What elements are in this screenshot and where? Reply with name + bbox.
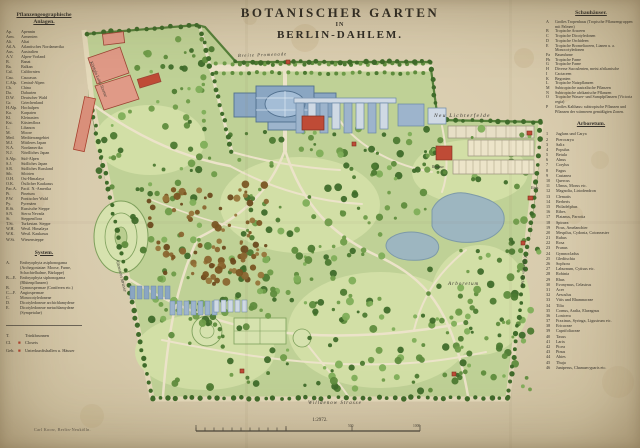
- label-lichterfelde: Neu Lichterfelde: [433, 112, 491, 119]
- system-abbr: A.: [6, 260, 20, 275]
- schauhaus-entry: P Großes Kalthaus: subtropische Pflanzen…: [546, 105, 636, 114]
- phytogeo-heading-1: Pflanzengeographische: [6, 12, 82, 19]
- printer-credit: Carl Koow, Berlin-Neukölln.: [34, 427, 91, 432]
- scale-mid-label: 500: [348, 424, 354, 428]
- title-line-2: IN: [180, 22, 500, 28]
- system-entry: A. Embryophyta asiphonogama (Archegoniat…: [6, 260, 82, 275]
- label-entrance: Eing.: [530, 186, 539, 190]
- system-heading: System.: [6, 250, 82, 257]
- map-title: BOTANISCHER GARTEN IN BERLIN-DAHLEM.: [180, 5, 500, 41]
- symbol-name: Trinkbrunnen: [25, 332, 82, 339]
- arboretum-heading: Arboretum.: [546, 121, 636, 128]
- symbol-abbr: Cl.: [6, 339, 18, 346]
- symbol-name: Unterkunftshallen u. Häuser: [25, 347, 82, 354]
- phytogeographic-legend: Pflanzengeographische Anlagen. Ap. Apenn…: [6, 12, 82, 354]
- title-line-3: BERLIN-DAHLEM.: [180, 29, 500, 41]
- arboretum-list: 1 Juglans und Carya 2 Pterocarya 3 Salix…: [546, 131, 636, 370]
- system-abbr: B—E.: [6, 275, 20, 285]
- scale-end-label: 1000: [413, 424, 420, 428]
- symbol-swatch: ■: [18, 347, 25, 354]
- title-line-1: BOTANISCHER GARTEN: [180, 5, 500, 21]
- system-entry: E. Dicotyledoneae metachlamydeae (Sympet…: [6, 305, 82, 315]
- symbol-swatch: ■: [18, 339, 25, 346]
- symbol-entry: T. Trinkbrunnen: [6, 332, 82, 339]
- symbol-entry: Geb. ■ Unterkunftshallen u. Häuser: [6, 347, 82, 354]
- label-arboretum-area: Arboretum: [447, 281, 479, 287]
- map-sheet: Breite Promenade Neu Lichterfelde Königi…: [0, 0, 640, 448]
- schauhaeuser-list: A Großes Tropenhaus (Tropische Pflanzeng…: [546, 20, 636, 114]
- symbol-swatch: [18, 332, 25, 339]
- label-restaurant: Restaur.: [431, 165, 444, 169]
- system-name: Dicotyledoneae metachlamydeae (Sympetala…: [20, 305, 82, 315]
- arboretum-entry: 46 Juniperus, Chamaecyparis etc.: [546, 365, 636, 370]
- schauhaus-name: Großes Kalthaus: subtropische Pflanzen u…: [555, 105, 636, 114]
- restaurant-building: [436, 146, 452, 160]
- legend-name: Wiesensteppe: [21, 237, 82, 242]
- system-list: A. Embryophyta asiphonogama (Archegoniat…: [6, 260, 82, 316]
- legend-entry: W.St. Wiesensteppe: [6, 237, 82, 242]
- schauhaeuser-legend: Schauhäuser. A Großes Tropenhaus (Tropis…: [546, 10, 636, 370]
- system-section: System. A. Embryophyta asiphonogama (Arc…: [6, 250, 82, 316]
- scale-ratio: 1:2972.: [280, 418, 360, 423]
- phytogeo-heading-2: Anlagen.: [6, 19, 82, 26]
- symbol-name: Closets: [25, 339, 82, 346]
- system-name: Embryophyta siphonogama (Blütenpflanzen): [20, 275, 82, 285]
- phytogeo-list: Ap. Apennin Arm. Armenien Alt. Altai Atl…: [6, 29, 82, 242]
- garden-map: Breite Promenade Neu Lichterfelde Königi…: [0, 0, 640, 448]
- schauhaeuser-heading: Schauhäuser.: [546, 10, 636, 17]
- system-entry: B—E. Embryophyta siphonogama (Blütenpfla…: [6, 275, 82, 285]
- system-name: Embryophyta asiphonogama (Archegoniatae:…: [20, 260, 82, 275]
- schauhaus-letter: P: [546, 105, 555, 114]
- system-abbr: E.: [6, 305, 20, 315]
- symbol-entry: Cl. ■ Closets: [6, 339, 82, 346]
- label-willdenow-strasse: Willdenow Strasse: [308, 401, 362, 406]
- symbol-abbr: Geb.: [6, 347, 18, 354]
- scale-bar: 500 1000: [196, 424, 420, 431]
- arboretum-number: 46: [546, 365, 556, 370]
- arboretum-name: Juniperus, Chamaecyparis etc.: [556, 365, 636, 370]
- lake-small: [386, 232, 439, 260]
- symbol-abbr: T.: [6, 332, 18, 339]
- legend-abbr: W.St.: [6, 237, 21, 242]
- symbols-section: T. Trinkbrunnen Cl. ■ Closets Geb. ■ Unt…: [6, 325, 82, 354]
